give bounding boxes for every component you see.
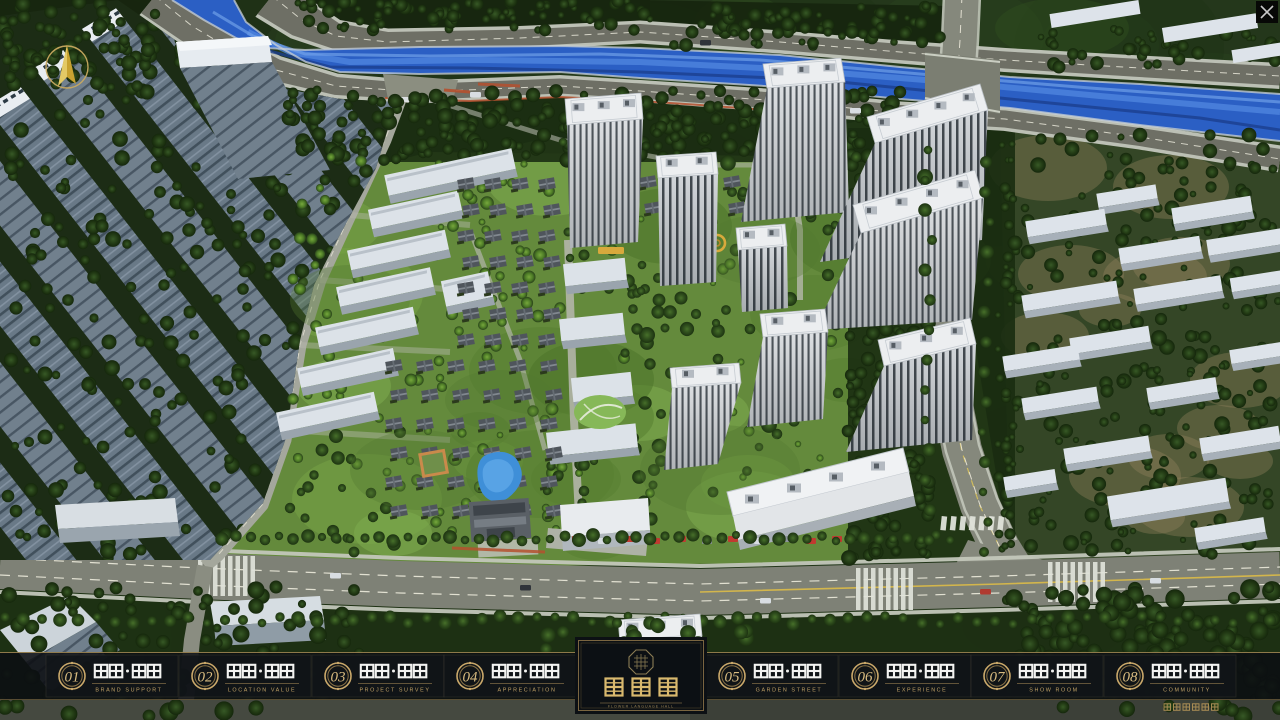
svg-text:FLOWER LANGUAGE HALL: FLOWER LANGUAGE HALL <box>608 705 674 709</box>
svg-text:06: 06 <box>858 670 874 686</box>
svg-text:05: 05 <box>725 670 741 686</box>
svg-text:COMMUNITY: COMMUNITY <box>1163 688 1211 694</box>
svg-text:PROJECT SURVEY: PROJECT SURVEY <box>359 688 430 694</box>
svg-text:02: 02 <box>198 670 214 686</box>
svg-text:01: 01 <box>65 670 80 686</box>
svg-text:07: 07 <box>990 670 1007 686</box>
svg-text:04: 04 <box>463 670 479 686</box>
svg-text:08: 08 <box>1123 670 1139 686</box>
svg-text:GARDEN STREET: GARDEN STREET <box>756 688 823 694</box>
svg-text:LOCATION VALUE: LOCATION VALUE <box>228 688 296 694</box>
svg-text:BRAND SUPPORT: BRAND SUPPORT <box>95 688 162 694</box>
svg-text:APPRECIATION: APPRECIATION <box>498 688 557 694</box>
svg-text:03: 03 <box>331 670 346 686</box>
svg-text:SHOW ROOM: SHOW ROOM <box>1029 688 1078 694</box>
svg-text:EXPERIENCE: EXPERIENCE <box>897 688 948 694</box>
